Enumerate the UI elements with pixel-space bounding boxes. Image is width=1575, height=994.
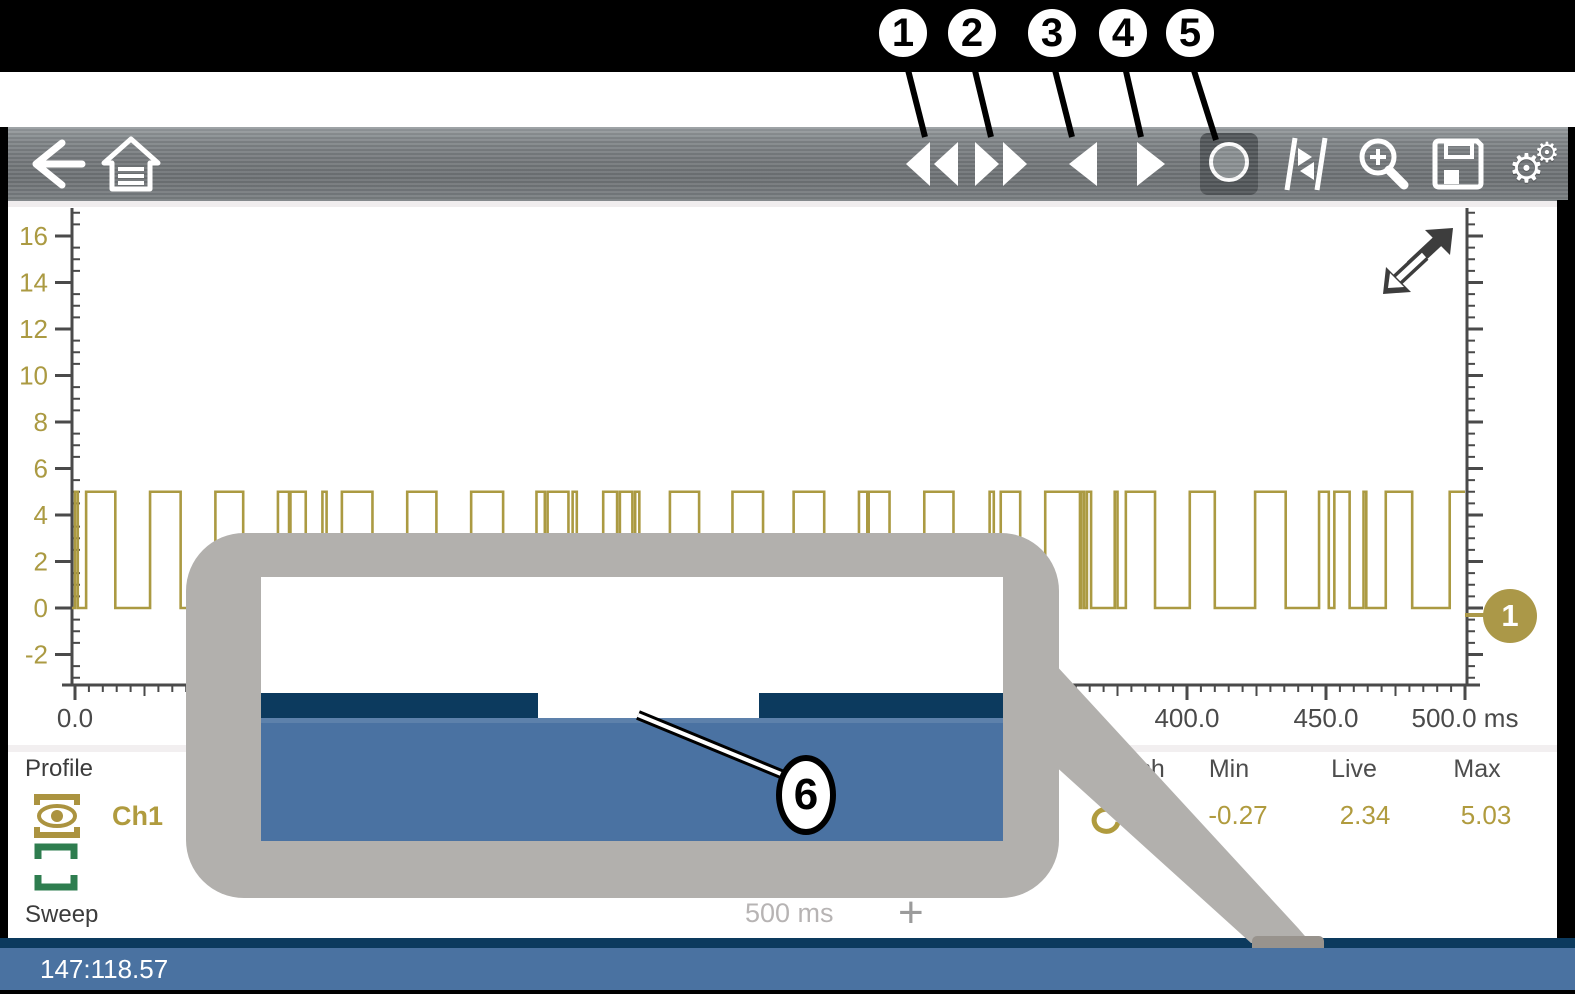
scrollbar-thumb[interactable] [1252,936,1324,948]
callout-6-leader [186,533,1059,898]
frame-right [1557,200,1575,938]
magnified-inset: 6 [186,533,1059,898]
callout-leader-lines [0,0,1575,250]
callout-5-number: 5 [1179,11,1201,56]
channel-1-label[interactable]: Ch1 [112,801,163,832]
scope-screen: 1 2 3 4 5 [0,0,1575,994]
callout-5: 5 [1162,5,1218,61]
callout-2: 2 [944,5,1000,61]
frame-bottom [0,990,1575,994]
sweep-value[interactable]: 500 ms [745,898,834,929]
channel-1-badge-label: 1 [1501,598,1518,634]
sweep-section-label: Sweep [25,901,98,929]
scrollbar-track[interactable] [0,938,1575,948]
stats-header-refresh: Refresh [1077,755,1165,784]
callout-3-number: 3 [1041,11,1063,56]
callout-6-number: 6 [794,770,818,820]
callout-2-number: 2 [961,11,983,56]
channel-1-badge[interactable]: 1 [1483,589,1537,643]
stat-max-value: 5.03 [1461,800,1512,831]
stats-header-min: Min [1209,755,1249,784]
status-bar[interactable]: 147:118.57 [0,948,1575,990]
stats-header-live: Live [1331,755,1377,784]
channel-2-placeholder-icon[interactable] [33,843,79,896]
status-position-readout: 147:118.57 [40,954,168,985]
channel-visibility-button[interactable] [33,793,81,844]
stat-live-value: 2.34 [1340,800,1391,831]
eye-icon [33,793,81,839]
dashed-brackets-icon [33,843,79,891]
callout-1: 1 [875,5,931,61]
profile-section-label: Profile [25,755,93,783]
callout-1-number: 1 [892,11,914,56]
stats-header-max: Max [1453,755,1500,784]
callout-4-number: 4 [1112,11,1134,56]
callout-4: 4 [1095,5,1151,61]
refresh-icon[interactable] [1090,806,1124,839]
callout-3: 3 [1024,5,1080,61]
callout-6: 6 [776,755,836,835]
stat-min-value: -0.27 [1208,800,1267,831]
badge-connector [1465,613,1485,617]
